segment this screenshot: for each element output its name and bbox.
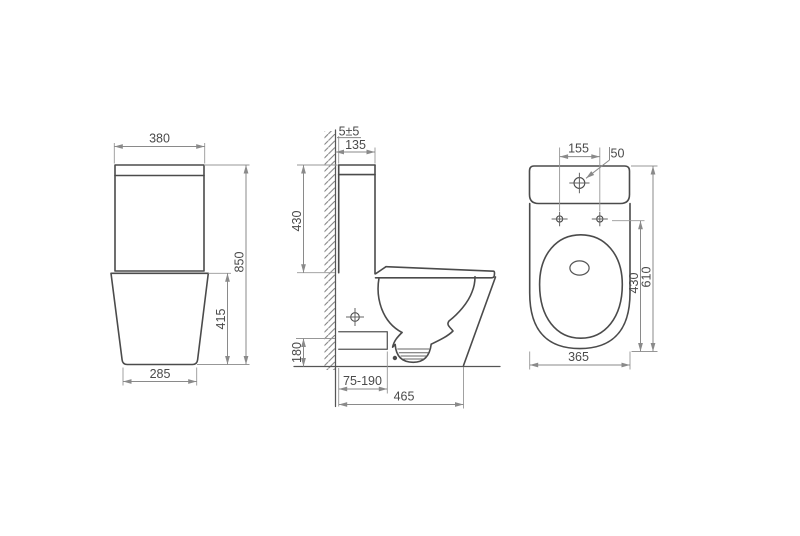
dim-overall-height: 850 (233, 252, 247, 273)
dim-tank-depth: 135 (345, 138, 366, 152)
fixing-hole-cross (346, 308, 364, 326)
dim-base-width: 285 (150, 367, 171, 381)
dim-tank-width: 380 (149, 132, 170, 146)
top-view: 155 50 430 610 365 (530, 142, 658, 370)
side-view: 5±5 135 430 180 75-190 465 (290, 125, 500, 409)
drawing-canvas: 380 850 415 285 (0, 0, 800, 536)
seat-profile (376, 267, 495, 278)
dim-outlet-height: 180 (290, 342, 304, 363)
dim-upper-height: 430 (290, 211, 304, 232)
bowl-front-inner-curve (431, 277, 475, 345)
trap-rim-notch (393, 333, 402, 348)
pedestal-front-slant (464, 277, 496, 366)
inlet-hole-cross (569, 173, 589, 193)
seat-ring-outline (540, 235, 623, 338)
trap-cup (395, 344, 431, 362)
toilet-technical-drawing: 380 850 415 285 (0, 0, 800, 536)
dim-base-height: 415 (214, 309, 228, 330)
dim-overall-depth: 465 (394, 390, 415, 404)
front-view: 380 850 415 285 (111, 132, 250, 386)
dim-outlet-range: 75-190 (343, 374, 382, 388)
pedestal-outline (111, 273, 208, 364)
seat-back-edge (376, 267, 387, 274)
cistern-outline (115, 165, 204, 271)
drain-dot (393, 356, 397, 360)
trap-water-lines (397, 349, 429, 359)
fixing-hole-cross (592, 212, 608, 226)
dim-wall-gap: 5±5 (339, 125, 360, 139)
sump-outline (570, 261, 589, 275)
dim-hole-spacing: 155 (568, 142, 589, 156)
dim-overall-length: 610 (640, 267, 654, 288)
fixing-hole-cross (552, 212, 568, 226)
dim-overall-width: 365 (568, 350, 589, 364)
dim-inlet-hole: 50 (611, 147, 625, 161)
outlet-box (339, 332, 388, 349)
leader-line-inlet (586, 160, 610, 178)
wall-hatching (325, 131, 336, 370)
bowl-back-curve (378, 278, 402, 333)
bowl-plan-outline (530, 204, 630, 349)
